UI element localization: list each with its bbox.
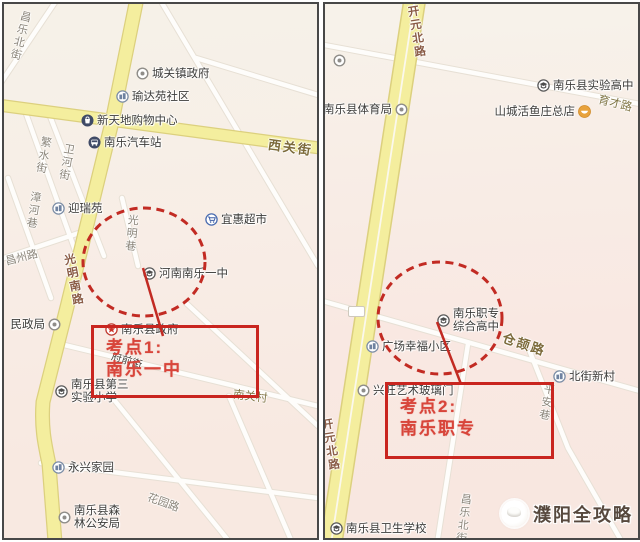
poi-label: 南乐县体育局 <box>323 101 392 117</box>
school-icon <box>537 79 550 92</box>
poi-nanle-health-school: 南乐县卫生学校 <box>330 520 427 536</box>
poi-civil-affairs-bureau: 民政局 <box>11 316 62 332</box>
dot-icon <box>48 318 61 331</box>
road-label-kaiyuan-north-rd-top: 开元北路 <box>404 4 428 60</box>
poi-yudayuan-community: 瑜达苑社区 <box>116 88 190 104</box>
poi-guangchang-xingfu-community: 广场幸福小区 <box>366 338 451 354</box>
building-icon <box>553 370 566 383</box>
road-label-kaiyuan-north-rd-bottom: 开元北路 <box>323 417 342 473</box>
map-screenshot: { "watermark": { "text": "濮阳全攻略" }, "lef… <box>0 0 640 542</box>
road-label-cangjie-rd: 仓颉路 <box>500 328 549 360</box>
poi-nanle-bus-station: 南乐汽车站 <box>88 134 162 150</box>
poi-label: 广场幸福小区 <box>382 338 451 354</box>
poi-label: 永兴家园 <box>68 459 114 475</box>
poi-label: 瑜达苑社区 <box>132 88 190 104</box>
road-label-zhanghe-lane: 漳河巷 <box>22 190 43 231</box>
building-icon <box>52 461 65 474</box>
right-map-panel: 开元北路育才路仓颉路平安巷昌乐北街开元北路南乐县体育局南乐县实验高中山城活鱼庄总… <box>323 2 640 540</box>
road-label-changzhou-rd: 昌州路 <box>4 245 40 269</box>
building-icon <box>366 340 379 353</box>
poi-label-line: 综合高中 <box>453 321 499 334</box>
poi-label: 南乐县卫生学校 <box>346 520 427 536</box>
road-label-huayuan-rd: 花园路 <box>145 489 181 515</box>
poi-forest-police: 南乐县森林公安局 <box>58 505 120 530</box>
building-icon <box>116 90 129 103</box>
poi-label: 南乐汽车站 <box>104 134 162 150</box>
bus-icon <box>88 136 101 149</box>
school-icon <box>55 385 68 398</box>
exam-area-dashed-circle <box>83 208 205 316</box>
road-shield <box>348 306 365 317</box>
poi-nanle-vocational-high: 南乐职专综合高中 <box>437 308 499 333</box>
exam-box-2: 考点2: 南乐职专 <box>385 382 554 459</box>
road-label-yucai-rd: 育才路 <box>597 91 634 115</box>
dot-icon <box>58 511 71 524</box>
poi-nanle-experimental-high: 南乐县实验高中 <box>537 77 634 93</box>
road-label-guangming-lane: 光明巷 <box>121 213 141 253</box>
poi-label: 河南南乐一中 <box>159 265 228 281</box>
left-map-panel: 昌乐北街繁水街卫河街漳河巷昌州路西关街光明南路光明巷府前街南关村花园路城关镇政府… <box>2 2 319 540</box>
poi-yingruiyuan: 迎瑞苑 <box>52 200 103 216</box>
cart-icon <box>205 213 218 226</box>
poi-nanle-sports-bureau: 南乐县体育局 <box>323 101 408 117</box>
mall-icon <box>81 114 94 127</box>
poi-label: 南乐县森林公安局 <box>74 505 120 530</box>
building-icon <box>52 202 65 215</box>
poi-xintiandi-mall: 新天地购物中心 <box>81 112 178 128</box>
road-label-weihe-st: 卫河街 <box>55 142 78 183</box>
poi-label-line: 南乐县森 <box>74 505 120 518</box>
poi-yihui-supermarket: 宜惠超市 <box>205 211 267 227</box>
poi-label-line: 南乐职专 <box>453 308 499 321</box>
dot-icon <box>357 384 370 397</box>
school-icon <box>143 267 156 280</box>
poi-label: 迎瑞苑 <box>68 200 103 216</box>
road-label-guangming-south-rd: 光明南路 <box>60 252 86 308</box>
watermark: 濮阳全攻略 <box>501 500 633 527</box>
school-icon <box>330 522 343 535</box>
poi-label: 宜惠超市 <box>221 211 267 227</box>
dot-icon <box>333 54 346 67</box>
poi-shancheng-fish-restaurant: 山城活鱼庄总店 <box>495 103 592 119</box>
poi-label: 新天地购物中心 <box>97 112 178 128</box>
poi-label: 南乐职专综合高中 <box>453 308 499 333</box>
road-label-fanshui-st: 繁水街 <box>32 135 55 176</box>
poi-label: 南乐县实验高中 <box>553 77 634 93</box>
poi-label: 北街新村 <box>569 368 615 384</box>
road-label-changle-north-st: 昌乐北街 <box>6 9 34 63</box>
exam-box-1-line2: 南乐一中 <box>106 359 256 381</box>
dot-icon <box>395 103 408 116</box>
poi-label-line: 林公安局 <box>74 518 120 531</box>
poi-henan-nanle-no1: 河南南乐一中 <box>143 265 228 281</box>
school-icon <box>437 314 450 327</box>
exam-box-1: 考点1: 南乐一中 <box>91 325 259 398</box>
exam-box-2-line1: 考点2: <box>400 396 551 418</box>
poi-label: 城关镇政府 <box>152 65 210 81</box>
road-label-xiguan-st: 西关街 <box>267 134 314 159</box>
food-icon <box>578 105 591 118</box>
poi-unnamed-poi <box>333 54 349 67</box>
poi-yongxing-homes: 永兴家园 <box>52 459 114 475</box>
exam-box-1-line1: 考点1: <box>106 337 256 359</box>
poi-label: 民政局 <box>11 316 46 332</box>
poi-beijie-new-village: 北街新村 <box>553 368 615 384</box>
road-label-changle-north-st-right: 昌乐北街 <box>452 492 474 540</box>
puyang-guide-logo-icon <box>501 500 528 527</box>
poi-chengguan-town-gov: 城关镇政府 <box>136 65 210 81</box>
exam-box-2-line2: 南乐职专 <box>400 418 551 440</box>
watermark-text: 濮阳全攻略 <box>533 501 633 527</box>
dot-icon <box>136 67 149 80</box>
poi-label: 山城活鱼庄总店 <box>495 103 576 119</box>
